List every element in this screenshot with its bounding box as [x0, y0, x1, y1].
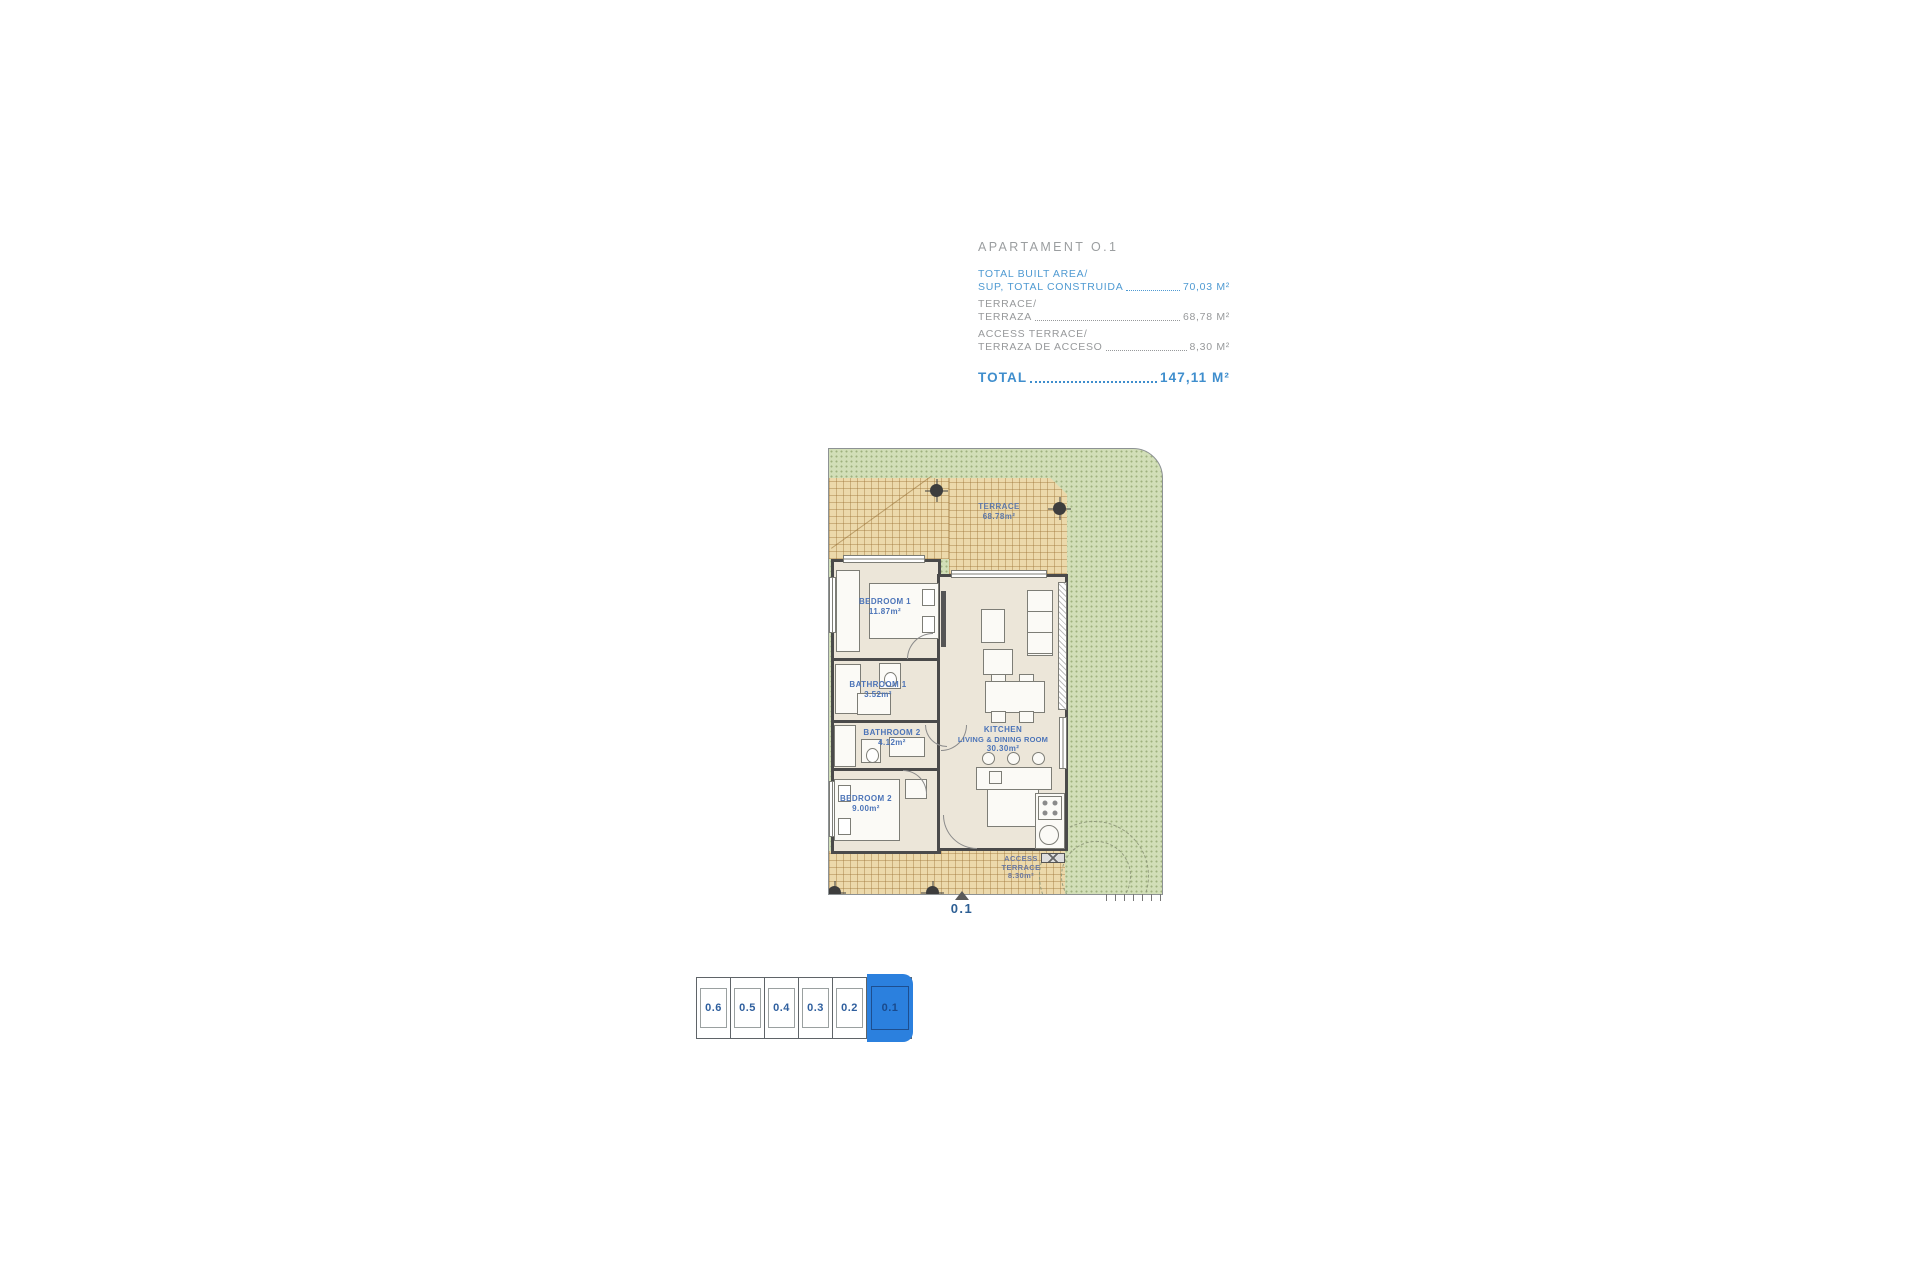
dot-leader — [1126, 290, 1180, 291]
armchair — [983, 649, 1013, 675]
interior-wall — [834, 768, 938, 771]
brochure-page: APARTAMENT O.1 TOTAL BUILT AREA/ SUP, TO… — [0, 0, 1920, 1280]
kitchen-island — [976, 767, 1052, 790]
window — [843, 555, 925, 563]
stove — [1038, 796, 1062, 820]
window — [1059, 717, 1067, 769]
access-terrace-label: ACCESS TERRACE 8.30m² — [997, 855, 1045, 881]
bar-stool — [982, 752, 995, 765]
glazed-facade — [1058, 582, 1067, 710]
terrace-slider-window — [951, 570, 1047, 578]
column-marker — [930, 484, 943, 497]
apartment-title: APARTAMENT O.1 — [978, 240, 1230, 254]
minimap-unit-0-3[interactable]: 0.3 — [799, 978, 833, 1038]
bar-stool — [1007, 752, 1020, 765]
unit-outline: 0.4 — [768, 988, 796, 1027]
minimap-unit-0-1-active[interactable]: 0.1 — [867, 974, 913, 1042]
column-marker — [926, 886, 939, 895]
kitchen-living-label: KITCHEN LIVING & DINING ROOM 30.30m² — [951, 725, 1055, 754]
unit-marker-arrow-icon — [955, 891, 969, 900]
access-terrace-value: 8,30 M² — [1190, 341, 1231, 354]
minimap-unit-0-2[interactable]: 0.2 — [833, 978, 867, 1038]
unit-outline: 0.3 — [802, 988, 830, 1027]
unit-marker: 0.1 — [944, 891, 980, 916]
window — [829, 577, 836, 633]
terrace-surface — [949, 478, 1067, 574]
minimap-unit-0-6[interactable]: 0.6 — [697, 978, 731, 1038]
tv-unit — [941, 591, 946, 647]
access-terrace-label-en: ACCESS TERRACE/ — [978, 328, 1230, 341]
dot-leader — [1106, 350, 1187, 351]
floor-plan: TERRACE68.78m² BEDROOM 111.87m² BATHROOM… — [828, 448, 1163, 895]
dining-chair — [991, 711, 1006, 723]
armchair — [981, 609, 1005, 643]
bathroom1-label: BATHROOM 13.52m² — [839, 680, 917, 699]
total-label: TOTAL — [978, 370, 1027, 385]
unit-marker-label: 0.1 — [944, 901, 980, 916]
terrace-label-en: TERRACE/ — [978, 298, 1230, 311]
dot-leader — [1030, 381, 1157, 383]
unit-outline: 0.5 — [734, 988, 762, 1027]
unit-outline: 0.1 — [871, 986, 909, 1030]
sofa — [1027, 590, 1053, 656]
minimap-unit-0-5[interactable]: 0.5 — [731, 978, 765, 1038]
interior-wall — [834, 720, 938, 723]
unit-outline: 0.6 — [700, 988, 728, 1027]
column-marker — [828, 886, 841, 895]
built-area-group: TOTAL BUILT AREA/ SUP, TOTAL CONSTRUIDA … — [978, 268, 1230, 293]
total-area-row: TOTAL 147,11 M² — [978, 370, 1230, 385]
built-area-label-en: TOTAL BUILT AREA/ — [978, 268, 1230, 281]
built-area-label-es: SUP, TOTAL CONSTRUIDA — [978, 281, 1123, 294]
kitchen-counter — [987, 789, 1039, 827]
dining-chair — [1019, 711, 1034, 723]
terrace-area-group: TERRACE/ TERRAZA 68,78 M² — [978, 298, 1230, 323]
total-value: 147,11 M² — [1160, 370, 1230, 385]
unit-locator-map: 0.6 0.5 0.4 0.3 0.2 0.1 — [696, 977, 912, 1039]
dot-leader — [1035, 320, 1180, 321]
column-marker — [1053, 502, 1066, 515]
access-terrace-area-group: ACCESS TERRACE/ TERRAZA DE ACCESO 8,30 M… — [978, 328, 1230, 353]
unit-outline: 0.2 — [836, 988, 864, 1027]
bedroom1-label: BEDROOM 111.87m² — [845, 597, 925, 616]
bar-stool — [1032, 752, 1045, 765]
terrace-area-value: 68,78 M² — [1183, 311, 1230, 324]
shower — [834, 725, 856, 767]
kitchen-sink — [1039, 825, 1059, 845]
bedroom2-label: BEDROOM 29.00m² — [835, 794, 897, 813]
area-summary: APARTAMENT O.1 TOTAL BUILT AREA/ SUP, TO… — [978, 240, 1230, 385]
dining-table — [985, 681, 1045, 713]
terrace-label: TERRACE68.78m² — [972, 502, 1026, 521]
terrace-label-es: TERRAZA — [978, 311, 1032, 324]
access-terrace-label-es: TERRAZA DE ACCESO — [978, 341, 1103, 354]
minimap-unit-0-4[interactable]: 0.4 — [765, 978, 799, 1038]
island-sink — [989, 771, 1002, 784]
bathroom2-label: BATHROOM 24.12m² — [859, 728, 925, 747]
dimension-ticks — [1106, 894, 1164, 901]
built-area-value: 70,03 M² — [1183, 281, 1230, 294]
